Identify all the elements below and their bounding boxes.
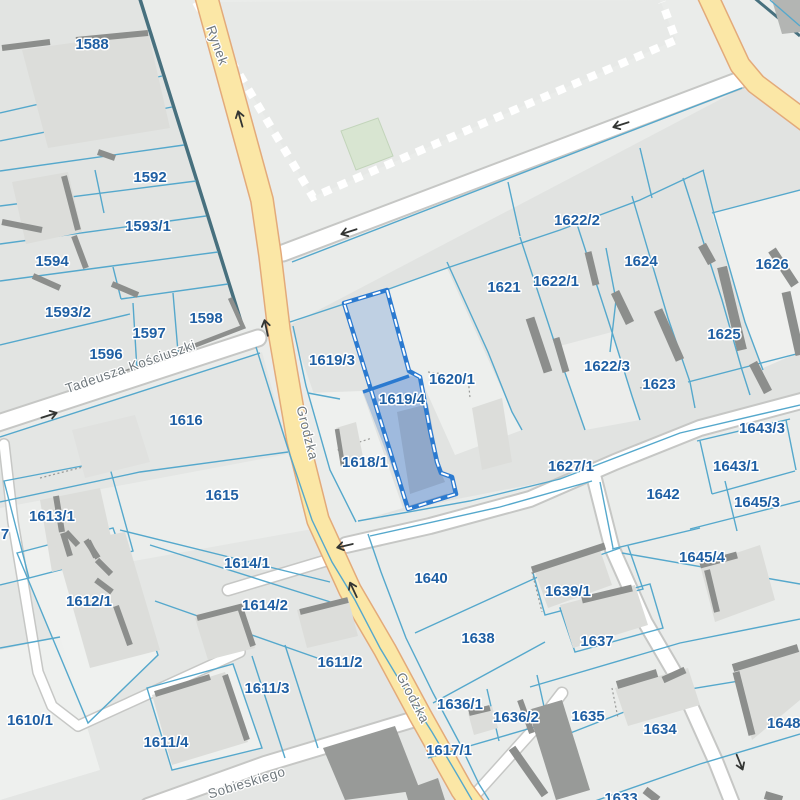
parcel-label-1645-4[interactable]: 1645/4 xyxy=(679,549,726,566)
parcel-label-1597[interactable]: 1597 xyxy=(132,325,165,342)
parcel-label-1614-1[interactable]: 1614/1 xyxy=(224,555,270,572)
parcel-label-1634[interactable]: 1634 xyxy=(643,721,677,738)
parcel-label-1638[interactable]: 1638 xyxy=(461,630,494,647)
parcel-label-1623[interactable]: 1623 xyxy=(642,376,675,393)
parcel-label-1642[interactable]: 1642 xyxy=(646,486,679,503)
parcel-label-1640[interactable]: 1640 xyxy=(414,570,447,587)
parcel-label-1622-3[interactable]: 1622/3 xyxy=(584,358,630,375)
parcel-label-1643-1[interactable]: 1643/1 xyxy=(713,458,759,475)
parcel-label-1643-3[interactable]: 1643/3 xyxy=(739,420,785,437)
parcel-label-1592[interactable]: 1592 xyxy=(133,169,166,186)
parcel-label-1611-4[interactable]: 1611/4 xyxy=(143,734,189,751)
parcel-label-1627-1[interactable]: 1627/1 xyxy=(548,458,594,475)
parcel-label-1636-1[interactable]: 1636/1 xyxy=(437,696,483,713)
parcel-label-1635[interactable]: 1635 xyxy=(571,708,604,725)
parcel-label-1616[interactable]: 1616 xyxy=(169,412,202,429)
parcel-label-1625[interactable]: 1625 xyxy=(707,326,740,343)
parcel-label-1615[interactable]: 1615 xyxy=(205,487,238,504)
parcel-label-1612-1[interactable]: 1612/1 xyxy=(66,593,112,610)
parcel-label-1598[interactable]: 1598 xyxy=(189,310,222,327)
parcel-label-1618-1[interactable]: 1618/1 xyxy=(342,454,388,471)
parcel-label-1611-2[interactable]: 1611/2 xyxy=(317,654,362,671)
parcel-label-1645-3[interactable]: 1645/3 xyxy=(734,494,780,511)
parcel-label-1621[interactable]: 1621 xyxy=(487,279,520,296)
parcel-label-1619-3[interactable]: 1619/3 xyxy=(309,352,355,369)
parcel-label-1619-4[interactable]: 1619/4 xyxy=(379,391,426,408)
parcel-label-1614-2[interactable]: 1614/2 xyxy=(242,597,288,614)
parcel-label-1637[interactable]: 1637 xyxy=(580,633,613,650)
parcel-label-1593-1[interactable]: 1593/1 xyxy=(125,218,171,235)
parcel-label-1611-3[interactable]: 1611/3 xyxy=(244,680,289,697)
parcel-label-1633[interactable]: 1633 xyxy=(604,790,637,800)
parcel-label-1648-1[interactable]: 1648/1 xyxy=(767,715,800,732)
parcel-label-1596[interactable]: 1596 xyxy=(89,346,122,363)
parcel-label-1636-2[interactable]: 1636/2 xyxy=(493,709,539,726)
parcel-label-1610-1[interactable]: 1610/1 xyxy=(7,712,53,729)
parcel-label-1622-1[interactable]: 1622/1 xyxy=(533,273,579,290)
parcel-label-1624[interactable]: 1624 xyxy=(624,253,658,270)
parcel-label-1613-1[interactable]: 1613/1 xyxy=(29,508,75,525)
parcel-label-1639-1[interactable]: 1639/1 xyxy=(545,583,591,600)
parcel-label-7[interactable]: 7 xyxy=(1,526,9,543)
parcel-label-1620-1[interactable]: 1620/1 xyxy=(429,371,475,388)
parcel-label-1594[interactable]: 1594 xyxy=(35,253,69,270)
parcel-label-1588[interactable]: 1588 xyxy=(75,36,108,53)
parcel-label-1617-1[interactable]: 1617/1 xyxy=(426,742,472,759)
map-canvas[interactable]: RynekTadeusza KościuszkiGrodzkaGrodzkaSo… xyxy=(0,0,800,800)
parcel-label-1622-2[interactable]: 1622/2 xyxy=(554,212,600,229)
map-viewport: RynekTadeusza KościuszkiGrodzkaGrodzkaSo… xyxy=(0,0,800,800)
parcel-label-1593-2[interactable]: 1593/2 xyxy=(45,304,91,321)
parcel-label-1626[interactable]: 1626 xyxy=(755,256,788,273)
